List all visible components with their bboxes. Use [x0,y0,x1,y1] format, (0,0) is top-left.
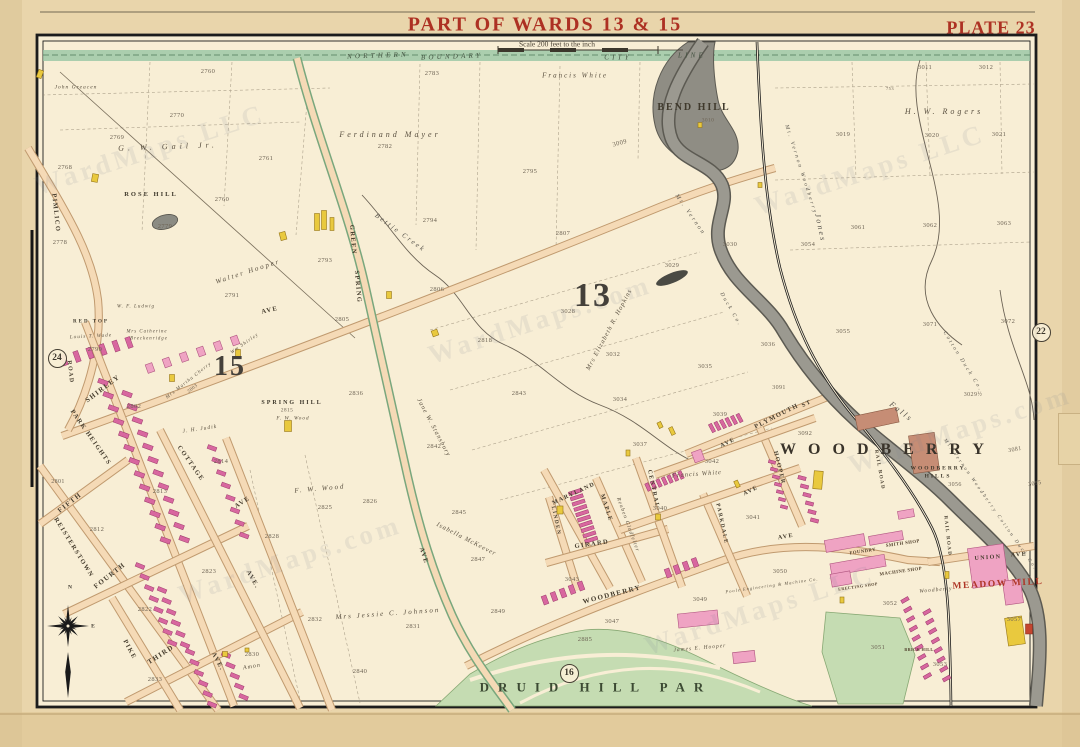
owner-label: Mrs Jessie C. Johnson [335,607,440,621]
plot-label: 2840 [353,669,368,676]
plot-label: 3035 [698,364,713,371]
place-label: BEND HILL [657,103,730,113]
watermark: WardMaps.com [424,269,655,371]
plot-label: 3032 [606,352,621,359]
street-label: MARYLAND [552,481,597,506]
plot-label: 3029 [665,263,680,270]
street-label: PIMLICO [50,193,61,233]
owner-label: John Greacen [55,85,98,91]
plot-label: 3095 [1028,480,1042,488]
street-label: GIRARD [574,539,609,550]
plot-label: 3036 [761,342,776,349]
bldg-label: FOUNDRY [849,549,876,557]
street-label: WOODBERRY [582,584,642,605]
plot-label: 3043 [565,577,580,584]
street-label: ST [801,399,813,409]
water-label: Falls [888,400,915,423]
street-label: MAPLE [599,493,614,522]
plot-label: 3054 [801,242,816,249]
plot-label: 2802 [127,404,142,411]
plot-label: 3021 [992,132,1007,139]
plot-label: 3030 [723,242,738,249]
plot-label: 2801 [51,479,65,485]
street-label: CENTRAL [646,469,660,509]
street-label: AVE [778,533,795,542]
plot-label: 2828 [265,534,280,541]
atlas-plate: PART OF WARDS 13 & 15 PLATE 23 Scale 200… [0,0,1080,747]
plot-label: 2790 [88,347,103,354]
bldg-label: MACHINE SHOP [879,568,922,579]
plot-label: 2832 [308,617,323,624]
plot-label: 2760 [215,197,230,204]
street-label: UNION [974,554,1001,562]
owner-label: F. W. Wood [276,416,309,421]
plot-label: 2831 [406,624,421,631]
plot-label: 3011 [918,65,932,72]
plot-label: 2805 [335,317,350,324]
adjacent-plate-ref: 16 [560,664,579,683]
plot-label: 3053 [933,662,948,669]
plot-label: 2813 [153,489,168,496]
owner-label: F. W. Wood [294,483,346,494]
water-label: Bettie Creek [373,212,426,253]
owner-label: Amon [243,662,262,671]
street-label: ROAD [66,360,74,384]
plot-label: 3037 [633,442,648,449]
street-label: PARKDALE [714,503,728,545]
plot-label: 2807 [556,231,571,238]
street-label: THIRD [147,644,176,666]
street-label: PIKE [121,639,137,661]
street-label: PLYMOUTH [754,403,801,431]
plot-label: 2794 [423,218,438,225]
owner-label: Ferdinand Mayer [339,131,440,139]
street-label: AVE [234,496,252,511]
plot-label: 3047 [605,619,620,626]
ward-label: 15 [214,353,246,381]
street-label: RAIL ROAD [942,515,951,556]
owner-label: J. H. Judik [182,425,217,435]
plot-label: 3034 [613,397,628,404]
water-label: Mt. Vernon Woodberry Cotton Duck Co. [942,438,1038,572]
water-label: Duck Co. [718,292,742,328]
plot-label: 3057 [1007,617,1022,624]
plot-label: 2845 [452,510,467,517]
plot-label: 3055 [836,329,851,336]
plot-label: 2833 [148,677,163,684]
plot-label: 2885 [578,637,593,644]
plot-label: 2795 [523,169,538,176]
plot-label: 3039 [713,412,728,419]
plot-label: 3081 [1008,446,1022,454]
plot-label: 2791 [225,293,240,300]
plot-label: 3010 [702,118,715,124]
owner-label: W. F. Ludwig [117,305,155,310]
bldg-label: BRICK HILL [904,648,933,652]
plot-label: 3056 [948,482,962,488]
plot-label: 3041 [746,515,761,522]
bound-label: CITY [604,55,632,62]
place-label: WOODBERRY [910,466,965,472]
plot-label: 753 [886,87,894,92]
watermark: WardMaps.com [174,509,405,611]
plot-label: 2761 [259,156,274,163]
owner-label: Reuben Gladfelter [615,497,640,553]
plot-label: 3092 [798,431,813,438]
label-layer: NORTHERNBOUNDARYCITYLINE1315BEND HILLROS… [0,0,1080,747]
water-label: Cotton Duck Co. [941,331,983,393]
street-label: FIFTH [57,492,84,515]
owner-label: Francis White [672,470,722,480]
street-label: AVE [742,485,759,498]
street-label: AVE [261,306,279,316]
water-label: Jones [813,213,827,243]
plot-label: 2783 [425,71,440,78]
owner-label: Breckenridge [130,338,168,343]
owner-label: Mrs Martha Cherry [165,362,213,401]
bound-label: LINE [678,53,706,60]
plot-label: 2842 [427,444,442,451]
plot-label: 2847 [471,557,486,564]
street-label: SHIRLEY [84,374,121,404]
bldg-label: SMITH SHOP [886,540,921,550]
water-label: Mt. Vernon [674,193,707,236]
plot-label: 3012 [979,65,994,72]
street-label: LINDEN [549,506,561,536]
plot-label: 3049 [693,597,708,604]
watermark: WardMaps LLC [31,98,270,202]
plot-label: 2760 [201,69,216,76]
plot-label: 3063 [997,221,1012,228]
tiny-label: E [91,624,95,630]
plot-label: 3042 [705,459,720,466]
plot-label: 2822 [138,607,153,614]
street-label: REISTERSTOWN [52,517,94,579]
plot-label: 2843 [512,391,527,398]
plot-label: 3062 [923,223,938,230]
bound-label: BOUNDARY [421,52,483,61]
plot-label: 2769 [110,135,125,142]
bound-label: NORTHERN [347,51,409,60]
street-label: SPRING [352,270,361,303]
plot-label: 2812 [90,527,105,534]
plot-label: 2782 [378,144,393,151]
plot-label: 2806 [430,287,445,294]
red-place-label: MEADOW MILL [952,578,1043,592]
plot-label: 2836 [349,391,364,398]
street-label: PARK HEIGHTS [68,409,111,467]
plot-label: 2826 [363,499,378,506]
park-big-label: DRUID HILL PAR [480,681,713,694]
street-label: FOURTH [93,562,127,591]
plot-label: 2770 [170,113,185,120]
plot-label: 2803 [187,383,199,394]
street-label: AVE [417,547,428,565]
plot-label: 2825 [318,505,333,512]
plot-label: 3040 [653,506,668,513]
owner-label: Louis T. Wade [70,333,112,340]
plot-label: 3061 [851,225,866,232]
plot-label: 3091 [772,385,786,391]
plot-label: 3051 [871,645,886,652]
adjacent-plate-ref: 22 [1032,323,1051,342]
owner-label: Francis White [542,73,608,80]
owner-label: Isabella McKeever [435,522,497,558]
street-label: AVE [719,437,736,450]
plot-label: 2779 [158,224,173,231]
owner-label: Woodberry [919,587,953,595]
street-label: COTTAGE [175,445,204,483]
street-label: GREEN [347,225,356,256]
watermark: WardMaps LLC [641,558,880,662]
tiny-label: N [68,585,72,591]
plot-label: 2830 [245,652,260,659]
plot-label: 2815 [281,408,294,414]
place-label: SPRING HILL [261,400,322,406]
plot-label: 2814 [214,459,229,466]
owner-label: Mrs Catherine [126,331,167,336]
adjacent-plate-ref: 24 [48,349,67,368]
plot-label: 2849 [491,609,506,616]
plot-label: 3019 [836,132,851,139]
plot-label: 3029½ [964,392,983,398]
plot-label: 3052 [883,601,898,608]
owner-label: Walter Hooper [215,258,281,286]
place-label: RED TOP [73,320,109,325]
plot-label: 3072 [1001,319,1016,326]
plot-label: 3009 [612,139,628,149]
street-label: AVE. [209,652,224,673]
place-label: ROSE HILL [124,192,178,199]
plot-label: 2778 [53,240,68,247]
plot-label: 2793 [318,258,333,265]
place-label: HILLS [925,474,952,480]
plot-label: 3071 [923,322,938,329]
plot-label: 3050 [773,569,788,576]
owner-label: H. W. Rogers [905,108,983,116]
